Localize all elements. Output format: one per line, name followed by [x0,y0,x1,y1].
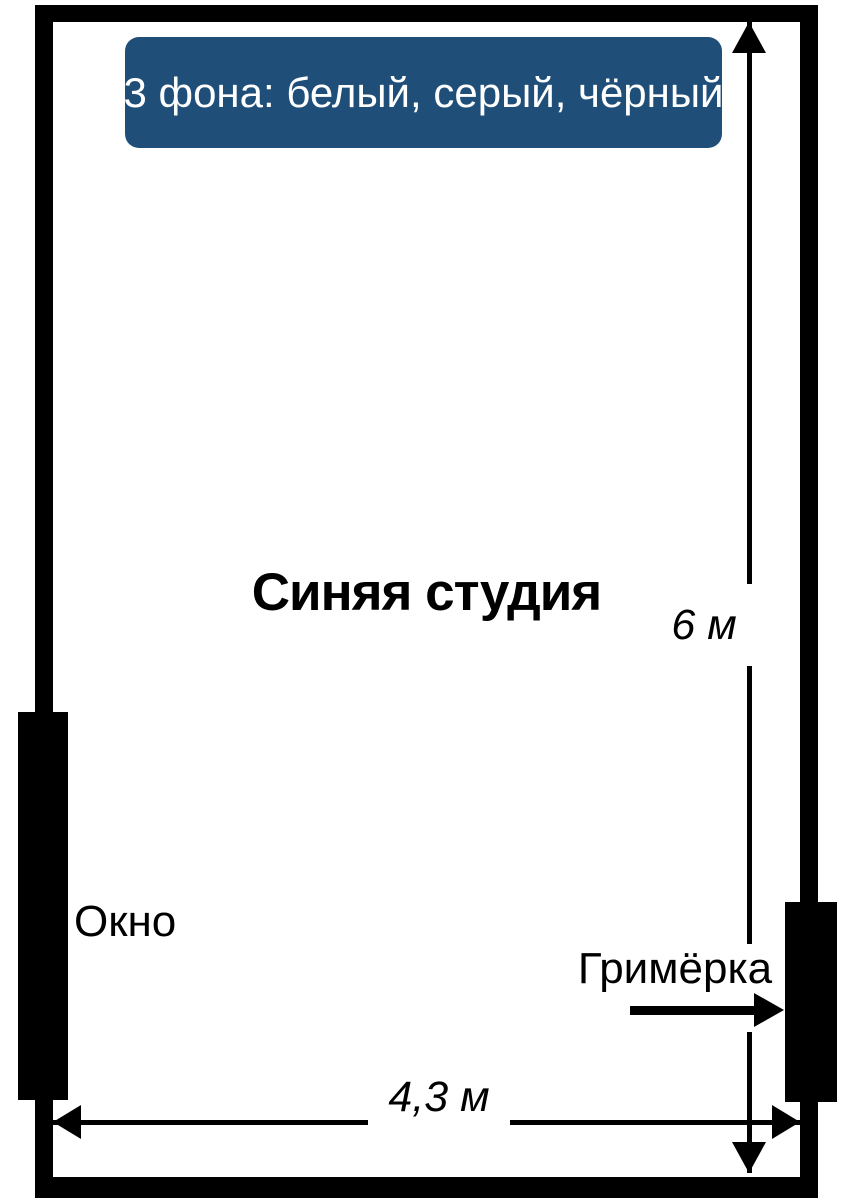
studio-floor-plan: 6 м 4,3 м Гримёрка Окно Синяя студия 3 ф… [0,0,850,1200]
left-arrowhead-icon [53,1105,81,1139]
backgrounds-info-banner-text: 3 фона: белый, серый, чёрный [123,69,723,117]
right-arrowhead-icon [772,1105,800,1139]
dressing-room-arrow-shaft [630,1006,756,1015]
room-title: Синяя студия [53,562,800,623]
wall-bottom [35,1177,818,1198]
up-arrowhead-icon [732,22,766,53]
dressing-room-door-block [785,902,837,1102]
window-label: Окно [74,896,176,948]
dressing-room-right-arrowhead-icon [754,993,784,1027]
backgrounds-info-banner: 3 фона: белый, серый, чёрный [125,37,722,148]
down-arrowhead-icon [732,1142,766,1173]
width-dimension-label: 4,3 м [368,1062,510,1132]
window-block [18,712,68,1100]
wall-top [35,5,818,22]
dressing-room-annotation: Гримёрка [566,944,784,1032]
dressing-room-label: Гримёрка [566,944,784,994]
